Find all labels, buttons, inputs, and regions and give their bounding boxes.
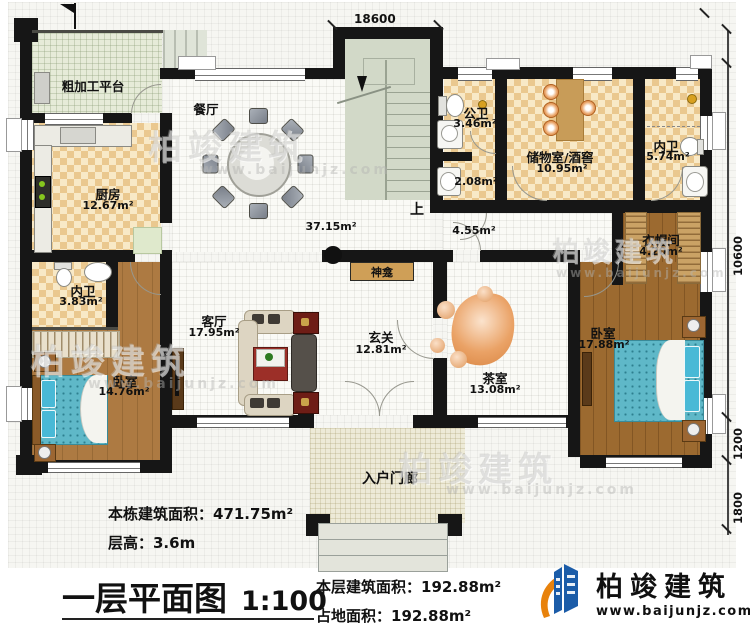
wall [430,200,712,213]
wall [32,30,163,33]
room-area-bath-small: 2.08m² [454,175,497,188]
stairs-up-label: 上 [410,199,424,219]
shrine-label: 神龛 [371,264,393,280]
wall [298,412,314,428]
window [197,417,289,428]
wine-bottle [543,84,559,100]
watermark: www.baijunjz.com [200,162,391,178]
rock-stone [477,286,493,302]
rock-stone [437,301,455,319]
wine-bottle [543,102,559,118]
window [48,462,140,473]
armchairs [291,334,317,392]
stair-landing [363,58,415,85]
lamp [38,446,51,459]
dimension-right-main: 10600 [731,214,745,276]
room-area-ensuite-top: 5.74m² [646,150,689,163]
room-area-living: 17.95m² [188,326,239,339]
watermark: www.baijunjz.com [88,376,279,392]
wine-bottle [580,100,596,116]
column [324,246,342,264]
sofa-cushion [250,398,264,408]
title-underline [62,618,314,620]
watermark: www.baijunjz.com [556,266,727,280]
pillow [41,410,56,438]
logo-text-group: 柏竣建筑 www.baijunjz.com [596,565,750,619]
wall [495,67,507,213]
pillow [684,380,700,412]
plan-title-row: 一层平面图 1:100 [62,572,327,620]
sofa-cushion [267,398,280,408]
logo-name: 柏竣建筑 [596,565,750,604]
sink-basin [84,262,112,282]
rock-stone [430,338,445,353]
window-sill [178,56,216,70]
wall [447,250,453,262]
rock-stone [450,351,467,368]
pillow [41,380,56,408]
room-area-tea: 13.08m² [469,383,520,396]
bed-sheet [656,340,685,420]
side-table-decor [301,398,309,406]
platform-sink [34,72,50,104]
tv-cabinet [582,352,592,406]
dimension-pole [74,3,76,29]
window-sill [690,55,712,69]
plant [265,353,273,361]
room-label-dining: 餐厅 [193,99,218,118]
wall [333,27,440,39]
lamp [687,423,700,436]
dimension-right-bottom: 1800 [731,478,745,524]
floor-height: 层高：3.6m [108,532,195,553]
watermark: www.baijunjz.com [446,482,637,498]
room-label-platform: 粗加工平台 [62,76,125,95]
window-sill [6,118,22,152]
room-area-bedroom-right: 17.88m² [578,338,629,351]
room-area-foyer: 12.81m² [355,343,406,356]
stair-direction-arrow [357,76,367,92]
stove-burner [39,181,45,187]
logo: 柏竣建筑 www.baijunjz.com [536,558,750,626]
footprint-area: 占地面积：192.88m² [316,605,471,626]
door-mat [133,227,162,254]
window [20,120,34,150]
floor-plan: 神龛 粗加工平台 厨房 12.67m² 餐厅 37 [0,0,750,636]
sink-basin [686,172,704,192]
stair-steps [386,82,432,200]
dimension-right-mid: 1200 [731,420,745,460]
wall [432,152,472,161]
pillow [684,346,700,378]
window-sill [712,112,726,150]
sofa-cushion [268,314,280,324]
wine-bottle [543,120,559,136]
watermark: 柏竣建筑 [552,230,676,269]
window [606,457,682,468]
room-area-public-bath: 3.46m² [453,117,496,130]
wall [32,327,118,330]
window [45,113,103,125]
wall [633,67,645,213]
side-table-decor [301,318,309,326]
room-area-ensuite-left: 3.83m² [59,295,102,308]
lamp [687,319,700,332]
room-area-dining: 37.15m² [305,220,356,233]
plan-title: 一层平面图 [62,572,227,620]
dimension-top: 18600 [354,12,396,26]
total-building-area: 本栋建筑面积：471.75m² [108,503,293,524]
dimension-flag [60,4,74,13]
logo-icon [536,558,588,626]
wall [433,358,447,415]
dining-chair [249,203,268,219]
window-sill [6,386,22,422]
porch-step [318,555,448,572]
kitchen-sink [60,127,96,144]
shower-head [687,94,697,104]
window [676,67,698,81]
room-area-corridor: 4.55m² [452,224,495,237]
toilet-tank [697,139,704,155]
toilet [446,94,464,117]
shower-divider [647,126,700,127]
bed-headboard [32,375,41,445]
plan-scale: 1:100 [241,586,327,617]
stove-burner [39,194,45,200]
wall [333,27,345,79]
window-sill [486,58,520,70]
room-area-storage: 10.95m² [536,162,587,175]
floor-area: 本层建筑面积：192.88m² [316,576,501,597]
shrine: 神龛 [350,262,414,281]
logo-website: www.baijunjz.com [596,604,750,619]
window [478,417,566,428]
room-area-kitchen: 12.67m² [82,199,133,212]
